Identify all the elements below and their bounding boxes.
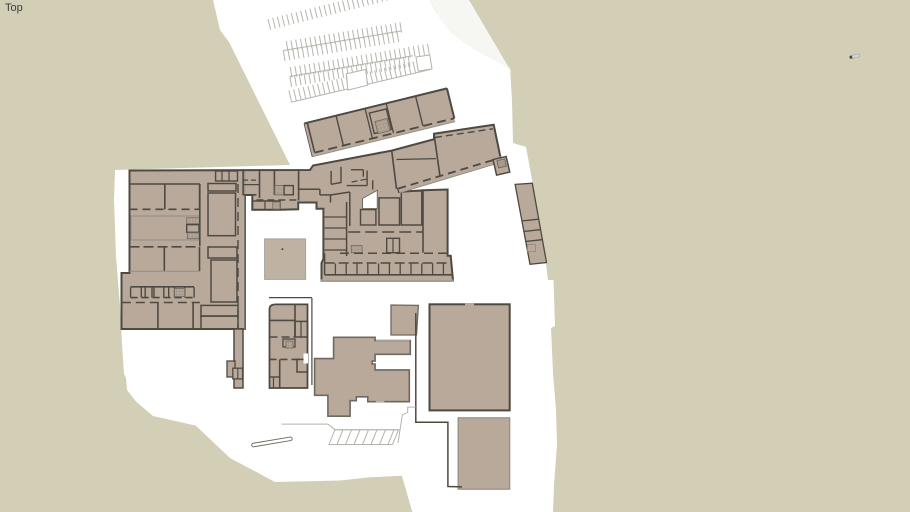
svg-text:Top: Top [5, 2, 23, 14]
